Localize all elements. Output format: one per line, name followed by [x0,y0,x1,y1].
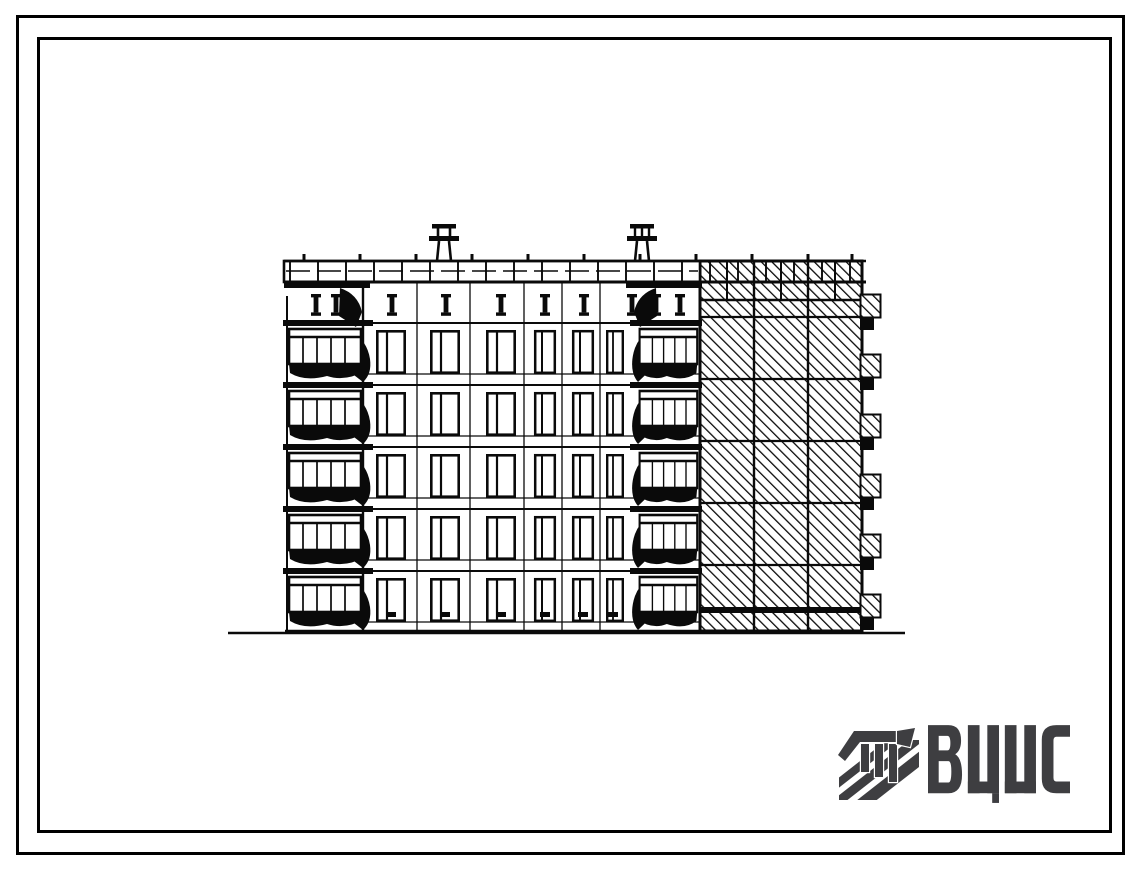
end-wall-hatched [700,261,862,631]
roof-vent-stack-right [627,224,657,261]
facade-windows [376,331,623,621]
document-sheet: ВЦИС [0,0,1139,869]
balcony-stack-right [626,283,702,630]
attic-vents [311,294,685,316]
logo-emblem-icon [838,728,920,800]
roof-vent-stack-left [429,224,459,261]
logo-text [928,722,1070,808]
logo: ВЦИС [838,722,1070,800]
balcony-stack-left [283,283,373,630]
